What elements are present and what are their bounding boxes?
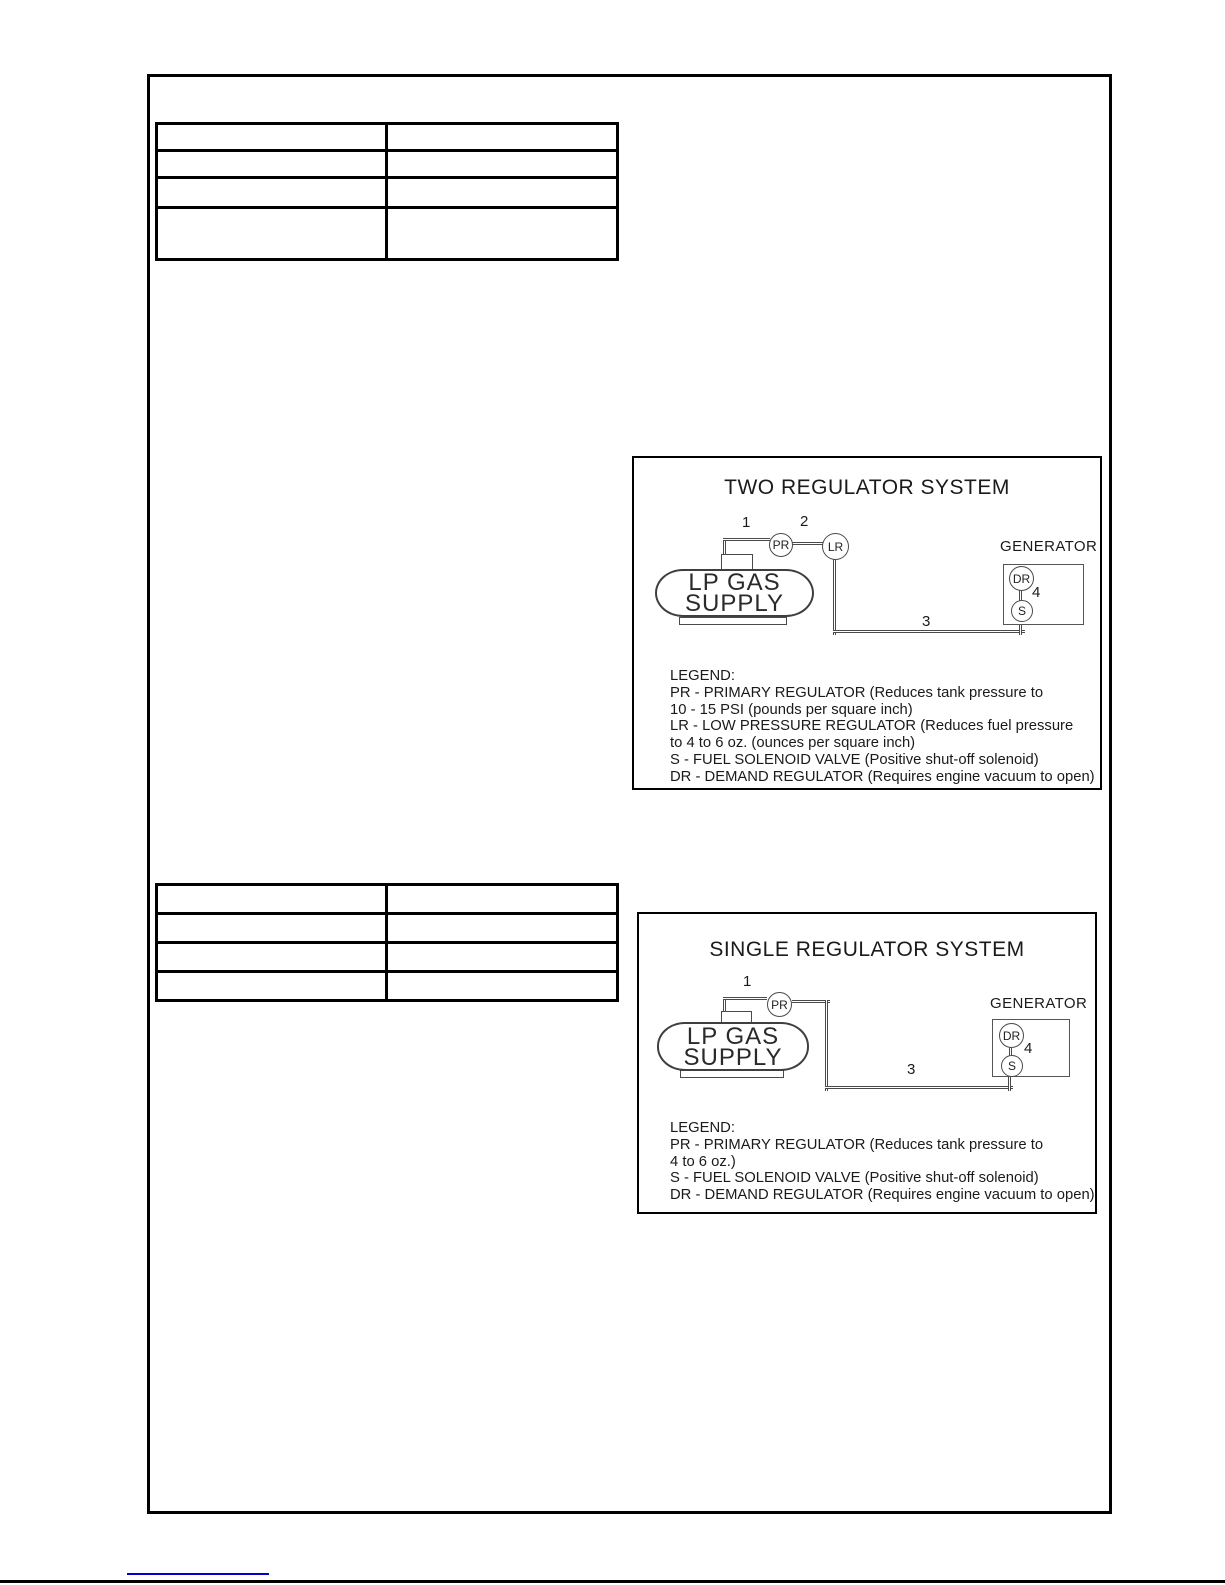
legend: LEGEND: PR - PRIMARY REGULATOR (Reduces … [670, 668, 1095, 786]
legend-line: LEGEND: [670, 668, 1095, 685]
callout-3: 3 [907, 1061, 915, 1078]
callout-1: 1 [743, 973, 751, 990]
pipe-segment [833, 630, 1025, 633]
generator-label: GENERATOR [990, 995, 1087, 1012]
legend-line: 4 to 6 oz.) [670, 1154, 1095, 1171]
legend-line: S - FUEL SOLENOID VALVE (Positive shut-o… [670, 752, 1095, 769]
footer-link-underline[interactable] [127, 1573, 269, 1575]
generator-label: GENERATOR [1000, 538, 1097, 555]
table-cell [158, 915, 385, 941]
table-cell [388, 152, 616, 176]
table-cell [388, 209, 616, 258]
table-cell [158, 944, 385, 970]
pipe-segment [825, 1086, 1013, 1089]
legend-line: 10 - 15 PSI (pounds per square inch) [670, 702, 1095, 719]
legend-line: to 4 to 6 oz. (ounces per square inch) [670, 735, 1095, 752]
table-cell [158, 973, 385, 999]
callout-1: 1 [742, 514, 750, 531]
two-regulator-diagram: TWO REGULATOR SYSTEM LP GAS SUPPLY PR LR… [632, 456, 1102, 790]
tank-base [680, 1070, 784, 1078]
single-regulator-diagram: SINGLE REGULATOR SYSTEM LP GAS SUPPLY PR… [637, 912, 1097, 1214]
legend-line: PR - PRIMARY REGULATOR (Reduces tank pre… [670, 685, 1095, 702]
table-cell [158, 152, 385, 176]
single-regulator-diagram-title: SINGLE REGULATOR SYSTEM [639, 938, 1095, 962]
pipe-segment [1008, 1075, 1011, 1091]
table-cell [388, 915, 616, 941]
legend-line: PR - PRIMARY REGULATOR (Reduces tank pre… [670, 1137, 1095, 1154]
pipe-segment [825, 1000, 828, 1091]
s-node: S [1011, 600, 1033, 622]
top-table [155, 122, 619, 261]
dr-node: DR [1009, 566, 1034, 591]
middle-table [155, 883, 619, 1002]
pipe-segment [723, 538, 770, 541]
table-cell [158, 209, 385, 258]
dr-node: DR [999, 1023, 1024, 1048]
table-cell [388, 944, 616, 970]
table-cell [158, 125, 385, 149]
callout-4: 4 [1032, 584, 1040, 601]
pipe-segment [833, 558, 836, 635]
table-cell [388, 125, 616, 149]
legend-line: DR - DEMAND REGULATOR (Requires engine v… [670, 1187, 1095, 1204]
table-cell [388, 973, 616, 999]
table-cell [158, 179, 385, 206]
legend-line: DR - DEMAND REGULATOR (Requires engine v… [670, 769, 1095, 786]
document-page: { "page": { "background_color": "#ffffff… [0, 0, 1225, 1585]
legend-line: S - FUEL SOLENOID VALVE (Positive shut-o… [670, 1170, 1095, 1187]
callout-2: 2 [800, 513, 808, 530]
page-border [147, 74, 1112, 1514]
lp-gas-tank: LP GAS SUPPLY [655, 569, 814, 617]
pipe-segment [723, 997, 767, 1000]
callout-3: 3 [922, 613, 930, 630]
pr-node: PR [767, 992, 792, 1017]
legend-line: LR - LOW PRESSURE REGULATOR (Reduces fue… [670, 718, 1095, 735]
callout-4: 4 [1024, 1040, 1032, 1057]
tank-base [679, 617, 787, 625]
table-cell [388, 886, 616, 912]
pipe-segment [792, 542, 823, 545]
legend-line: LEGEND: [670, 1120, 1095, 1137]
table-cell [158, 886, 385, 912]
pr-node: PR [769, 533, 793, 557]
legend: LEGEND: PR - PRIMARY REGULATOR (Reduces … [670, 1120, 1095, 1204]
lr-node: LR [822, 533, 849, 560]
lp-gas-tank: LP GAS SUPPLY [657, 1022, 809, 1071]
tank-label-line2: SUPPLY [684, 1047, 783, 1068]
page-bottom-edge [0, 1580, 1225, 1583]
table-cell [388, 179, 616, 206]
two-regulator-diagram-title: TWO REGULATOR SYSTEM [634, 476, 1100, 500]
tank-fitting [721, 554, 753, 570]
s-node: S [1001, 1055, 1023, 1077]
tank-label-line2: SUPPLY [685, 593, 784, 614]
